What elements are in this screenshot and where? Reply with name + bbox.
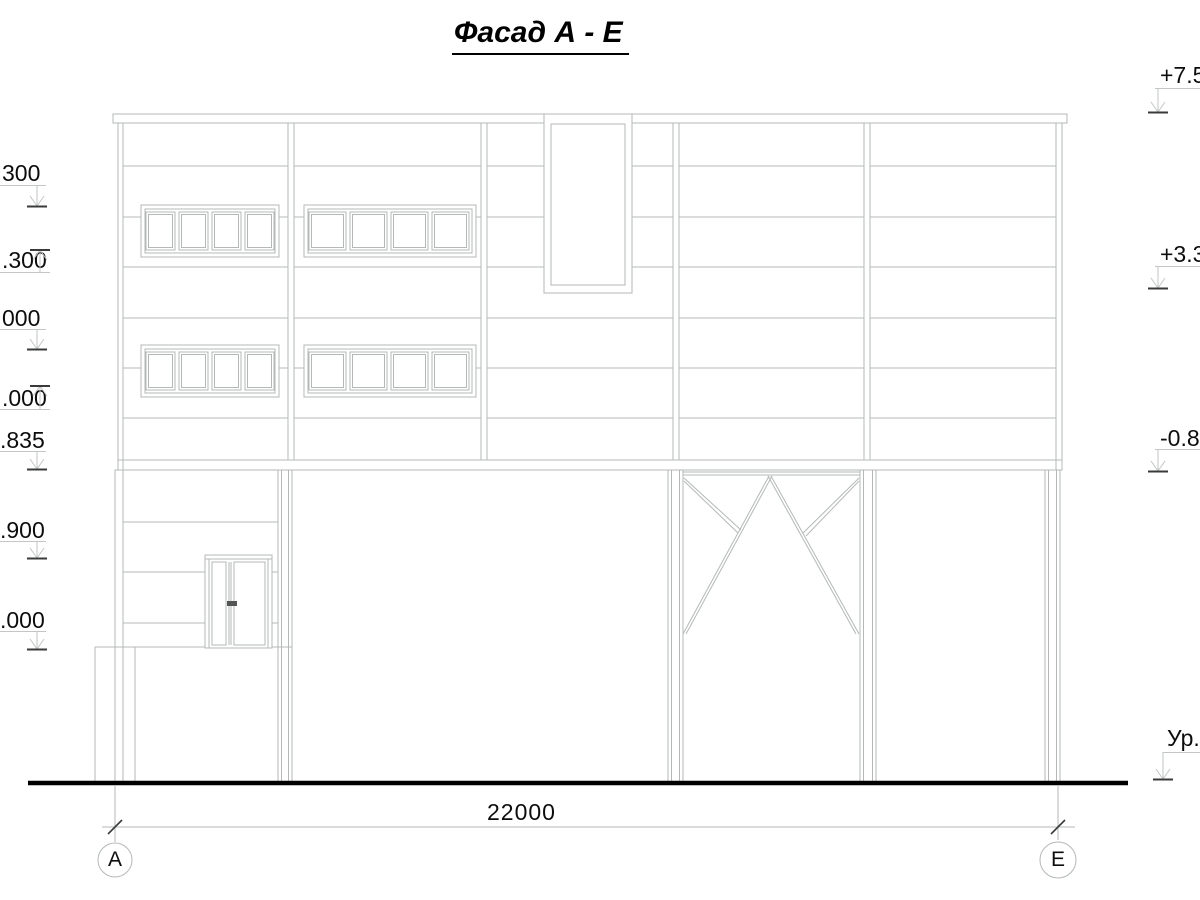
window-band-row2-right — [304, 345, 476, 397]
level-arrow-down-icon — [27, 451, 47, 472]
elev-mark-label: -0.83 — [1160, 427, 1200, 450]
elev-mark-label: 300 — [2, 162, 40, 185]
elev-mark-label: Ур. — [1167, 727, 1200, 750]
elev-mark-label: .000 — [0, 609, 45, 632]
level-arrow-down-icon — [27, 541, 47, 561]
level-arrow-down-icon — [1148, 266, 1168, 291]
level-arrow-down-icon — [1148, 449, 1168, 474]
level-arrow-down-icon — [1148, 88, 1168, 115]
window-band-row1-right — [304, 205, 476, 257]
level-arrow-down-icon — [27, 185, 47, 209]
elev-mark-label: +7.50 — [1160, 64, 1200, 87]
level-arrow-up-icon — [30, 248, 50, 273]
window-band-row2-left — [141, 345, 279, 397]
elev-mark-label: 000 — [2, 307, 40, 330]
facade-drawing-page: { "title": "Фасад А - Е", "dimension_lab… — [0, 0, 1200, 900]
elev-mark-label: .835 — [0, 429, 45, 452]
dimension-value: 22000 — [487, 799, 556, 826]
window-band-row1-left — [141, 205, 279, 257]
level-arrow-down-icon — [27, 329, 47, 352]
elev-mark-label: .900 — [0, 519, 45, 542]
level-arrow-up-icon — [30, 384, 50, 410]
grid-label-a: А — [98, 848, 132, 872]
braced-bay — [683, 472, 860, 634]
level-arrow-down-icon — [27, 631, 47, 652]
elev-mark-label: +3.30 — [1160, 243, 1200, 266]
entrance-door — [205, 555, 272, 648]
grid-label-e: Е — [1041, 848, 1075, 872]
dimension-and-grid — [98, 786, 1076, 878]
level-arrow-down-icon — [1153, 752, 1173, 783]
door-handle — [227, 601, 237, 606]
roof-shaft — [544, 114, 632, 293]
elevation-drawing — [0, 0, 1200, 900]
